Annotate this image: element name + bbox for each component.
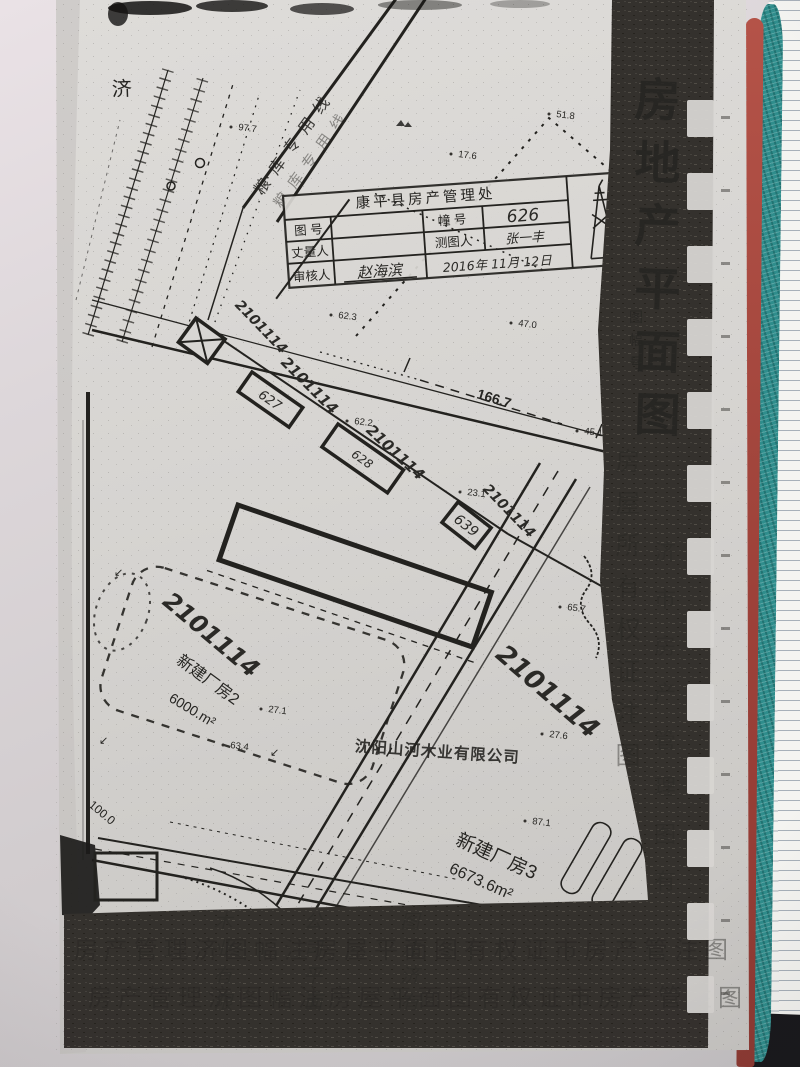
stamp-field-building-no: 幢 号 <box>437 211 466 228</box>
ghost-char: 幅 <box>254 937 278 964</box>
vertical-sheet-number-label: 图幅号 <box>629 309 643 371</box>
sprocket-notch <box>687 757 714 794</box>
bleed-char: 限 <box>213 992 234 1014</box>
elevation-value: 87.1 <box>532 816 552 829</box>
ghost-char: 管 <box>644 937 668 964</box>
sprocket-notch <box>687 100 714 137</box>
sprocket-notch <box>687 246 714 283</box>
elevation-dot <box>510 322 513 325</box>
ghost-char: 房 <box>584 937 608 964</box>
elevation-dot <box>450 153 453 156</box>
side-title-char: 地 <box>634 136 682 190</box>
bleed-char: 图 <box>400 911 422 933</box>
ghost-char: 平 <box>374 937 398 964</box>
ghost-char: 管 <box>658 985 682 1012</box>
ghost-char: 产 <box>654 681 676 706</box>
ghost-char: 图 <box>654 822 676 847</box>
scanned-plan-document: 627 628 639 济 粮库专用线 粮库专用线 166.7 100.0 沈阳… <box>0 0 800 1067</box>
edge-tick <box>721 919 730 922</box>
elevation-value: 45.1 <box>584 426 604 439</box>
sprocket-notch <box>687 611 714 648</box>
ghost-char: 图 <box>448 985 472 1012</box>
side-subtitle-char: 图 <box>629 309 643 325</box>
side-title-char: 房 <box>634 73 682 127</box>
stamp-field-surveyor: 丈量人 <box>291 244 330 261</box>
edge-tick <box>721 627 730 630</box>
elevation-value: 17.6 <box>458 149 478 162</box>
edge-tick <box>721 335 730 338</box>
sprocket-notch <box>687 903 714 940</box>
ghost-char: 济 <box>654 540 676 565</box>
slope-arrow: ↙ <box>270 747 279 759</box>
ghost-char: 房 <box>615 448 640 476</box>
sprocket-notch <box>687 392 714 429</box>
slope-arrow: ↙ <box>114 567 123 579</box>
elevation-dot <box>222 744 225 747</box>
bleed-char: 木 <box>213 911 234 933</box>
ghost-char: 产 <box>614 937 638 964</box>
elevation-dot <box>541 733 544 736</box>
stamp-drafter-value: 张一丰 <box>505 230 547 248</box>
ghost-char: 图 <box>704 937 728 964</box>
side-title-char: 平 <box>634 262 682 316</box>
ghost-char: 证 <box>524 937 548 964</box>
elevation-value: 65.7 <box>567 602 587 615</box>
side-subtitle-char: 幅 <box>629 332 643 348</box>
sprocket-notch <box>687 976 714 1013</box>
ghost-char: 注 <box>615 700 640 728</box>
ghost-char: 市 <box>554 937 578 964</box>
ghost-char: 图 <box>615 742 640 770</box>
sprocket-notch <box>687 538 714 575</box>
ghost-char: 权 <box>508 985 532 1012</box>
stamp-checker-value: 赵海滨 <box>356 261 404 282</box>
bleed-char: 面 <box>303 992 325 1014</box>
ghost-char: 理 <box>654 775 676 800</box>
edge-tick <box>721 700 730 703</box>
ghost-char: 权 <box>615 616 640 644</box>
elevation-value: 27.6 <box>549 729 569 742</box>
sprocket-notch <box>687 465 714 502</box>
ghost-char: 面 <box>418 985 442 1012</box>
ghost-char: 管 <box>148 985 172 1012</box>
elevation-dot <box>559 606 562 609</box>
ghost-char: 有 <box>615 574 640 602</box>
ghost-char: 房 <box>328 985 352 1012</box>
elevation-dot <box>524 820 527 823</box>
bleed-char: 业 <box>213 938 234 960</box>
bleed-char: 济 <box>400 965 422 987</box>
edge-tick <box>721 408 730 411</box>
side-title-char: 图 <box>634 388 682 442</box>
ghost-char: 管 <box>654 728 676 753</box>
ghost-char: 房 <box>654 634 676 659</box>
sprocket-notch <box>687 830 714 867</box>
ghost-char: 权 <box>494 937 518 964</box>
elevation-value: 27.1 <box>268 704 288 717</box>
ghost-char: 证 <box>615 658 640 686</box>
sprocket-notch <box>687 319 714 356</box>
bleed-char: 有 <box>213 965 235 987</box>
edge-tick <box>721 262 730 265</box>
ghost-char: 理 <box>178 985 202 1012</box>
ghost-char: 房 <box>88 985 112 1012</box>
ghost-char: 房 <box>74 937 98 964</box>
elevation-value: 62.3 <box>338 310 358 323</box>
stamp-field-checker: 审核人 <box>292 267 331 285</box>
sprocket-notch <box>687 173 714 210</box>
edge-tick <box>721 116 730 119</box>
ghost-char: 产 <box>118 985 142 1012</box>
elevation-dot <box>230 126 233 129</box>
bleed-char: 司 <box>303 938 324 960</box>
ghost-char: 市 <box>654 587 676 612</box>
ghost-char: 屋 <box>615 490 640 518</box>
ghost-char: 有 <box>464 937 488 964</box>
slope-arrow: ↙ <box>99 735 108 747</box>
bleed-char: 注 <box>400 938 421 960</box>
elevation-value: 47.0 <box>518 318 538 331</box>
ghost-char: 图 <box>238 985 262 1012</box>
stamp-building-no-value: 626 <box>506 205 540 227</box>
ghost-char: 市 <box>568 985 592 1012</box>
ghost-char: 产 <box>104 937 128 964</box>
place-name-char: 济 <box>111 77 132 101</box>
ghost-char: 证 <box>538 985 562 1012</box>
edge-tick <box>721 554 730 557</box>
edge-tick <box>721 846 730 849</box>
ghost-char: 注 <box>674 937 698 964</box>
edge-tick <box>721 189 730 192</box>
elevation-dot <box>260 708 263 711</box>
elevation-dot <box>576 430 579 433</box>
elevation-value: 51.8 <box>556 109 576 122</box>
bleed-char: 公 <box>303 911 324 933</box>
elevation-dot <box>346 420 349 423</box>
side-subtitle-char: 号 <box>629 355 643 371</box>
ghost-char: 有 <box>478 985 502 1012</box>
ghost-char: 房 <box>598 985 622 1012</box>
elevation-dot <box>459 491 462 494</box>
elevation-value: 63.4 <box>230 740 250 753</box>
ghost-char: 图 <box>434 937 458 964</box>
sprocket-notch <box>687 684 714 721</box>
ghost-char: 幅 <box>268 985 292 1012</box>
stamp-field-map-no: 图 号 <box>294 222 323 238</box>
ghost-char: 理 <box>164 937 188 964</box>
side-title-char: 产 <box>634 199 682 253</box>
bleed-char: 有 <box>400 992 422 1014</box>
ghost-char: 有 <box>654 869 676 894</box>
edge-tick <box>721 773 730 776</box>
ghost-char: 图 <box>718 985 742 1012</box>
ghost-char: 屋 <box>358 985 382 1012</box>
elevation-dot <box>330 314 333 317</box>
elevation-value: 97.7 <box>238 122 258 135</box>
ghost-char: 屋 <box>344 937 368 964</box>
ghost-char: 管 <box>134 937 158 964</box>
bleed-char: 平 <box>303 965 324 987</box>
stamp-field-drafter: 测图人 <box>434 234 473 251</box>
elevation-dot <box>548 113 551 116</box>
ghost-char: 产 <box>628 985 652 1012</box>
photo-of-document: 627 628 639 济 粮库专用线 粮库专用线 166.7 100.0 沈阳… <box>0 0 800 1067</box>
edge-tick <box>721 481 730 484</box>
edge-tick <box>721 992 730 995</box>
ghost-char: 所 <box>615 532 640 560</box>
